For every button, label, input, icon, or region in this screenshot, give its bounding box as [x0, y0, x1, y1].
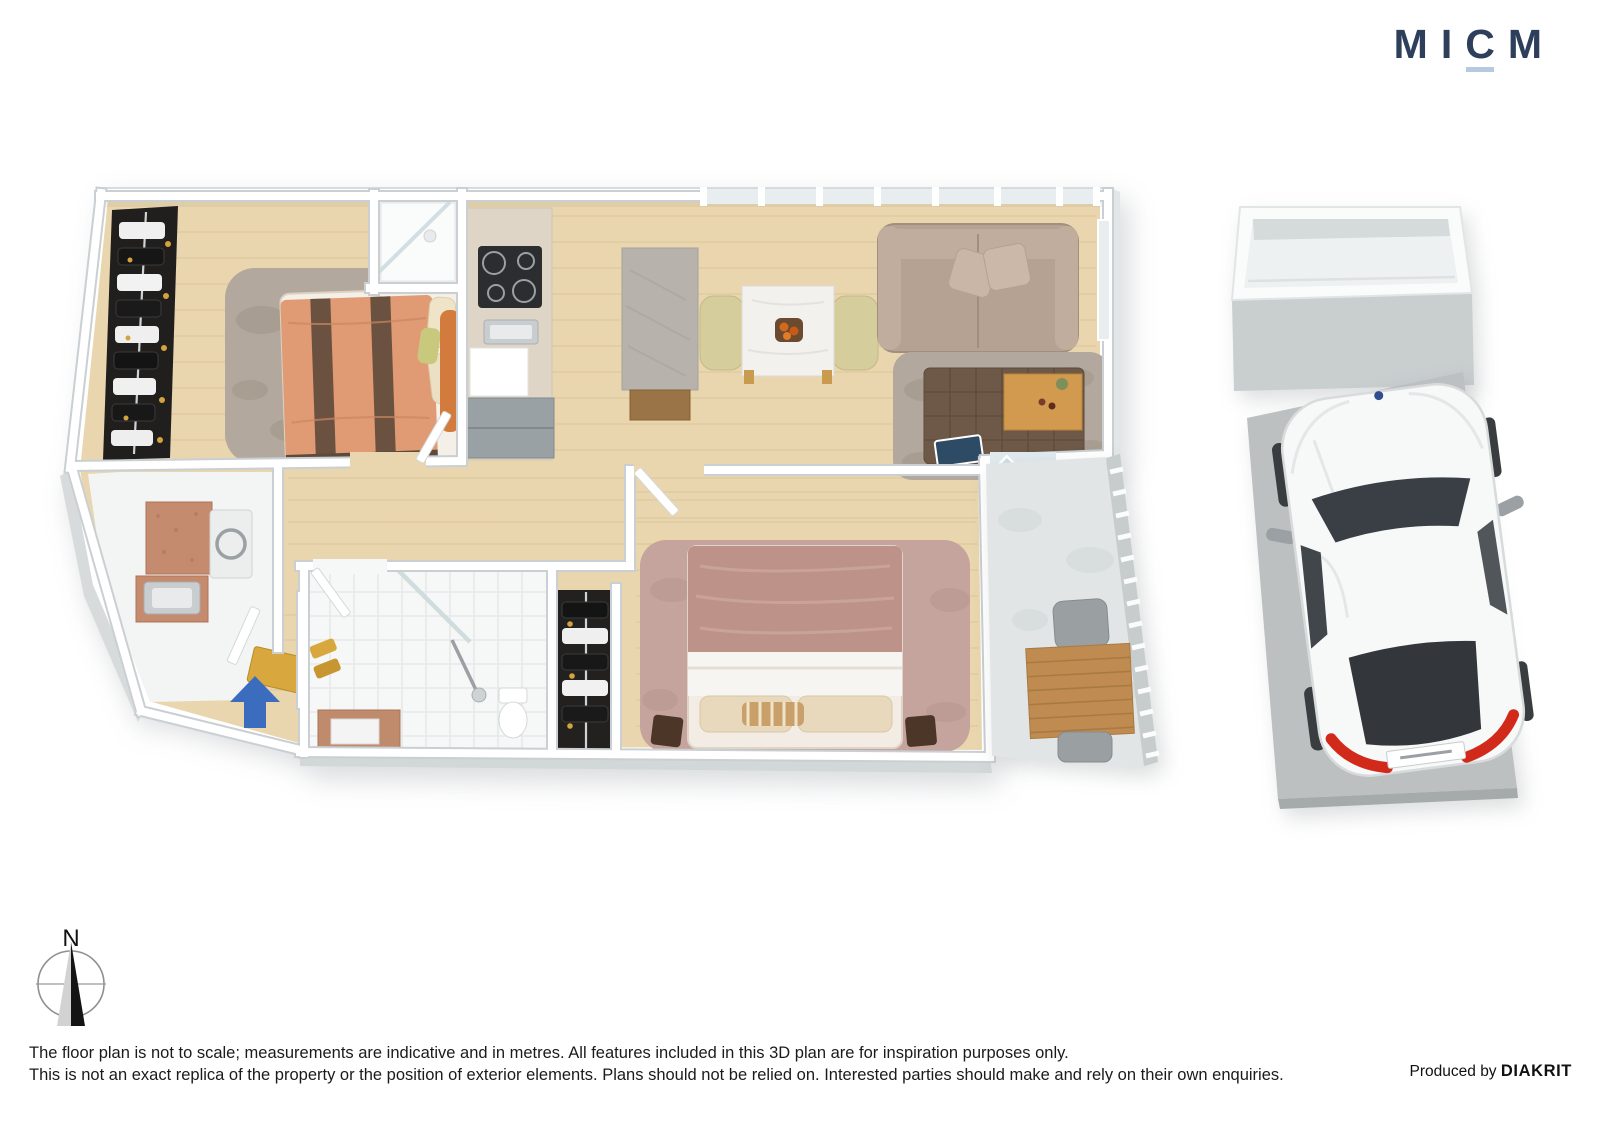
- cooktop: [478, 246, 542, 308]
- floor-plan-interior: [70, 187, 1112, 757]
- bathroom: [306, 568, 552, 753]
- splashback-tiles: [146, 502, 212, 574]
- ensuite-shower-room: [376, 198, 460, 288]
- disclaimer-line-1: The floor plan is not to scale; measurem…: [29, 1042, 1284, 1064]
- bathroom-door-gap: [313, 559, 387, 574]
- wardrobe-2: [556, 590, 616, 753]
- storage-front-face: [1232, 293, 1474, 391]
- magazine: [934, 435, 983, 467]
- dining-set: [700, 286, 878, 384]
- logo-letter: I: [1441, 24, 1452, 65]
- laundry-sink: [136, 576, 208, 622]
- basin: [331, 719, 379, 744]
- plant: [1056, 378, 1068, 390]
- pillow: [798, 696, 892, 732]
- island-base: [630, 390, 690, 420]
- side-window: [1098, 220, 1110, 340]
- balcony-chair-bottom: [1058, 732, 1112, 762]
- bedroom1-door-gap: [350, 452, 426, 469]
- disclaimer-line-2: This is not an exact replica of the prop…: [29, 1064, 1284, 1086]
- shower-drain: [424, 230, 436, 242]
- bed-2: [688, 546, 902, 748]
- sheet-fold: [688, 652, 902, 696]
- dining-chair-right: [832, 296, 878, 370]
- bedside-table-right: [905, 715, 938, 748]
- compass: N: [36, 925, 106, 1026]
- balcony-table: [1026, 643, 1135, 738]
- produced-by-credit: Produced by DIAKRIT: [1410, 1062, 1572, 1081]
- micm-logo: MICM: [1394, 24, 1542, 65]
- credit-brand: DIAKRIT: [1501, 1062, 1572, 1080]
- bedside-table-left: [650, 714, 683, 747]
- logo-letter: M: [1394, 24, 1428, 65]
- sofa-cushion: [982, 242, 1031, 291]
- floor-plan-page: N MICM The floor plan is not to scale; m…: [0, 0, 1600, 1131]
- credit-prefix: Produced by: [1410, 1063, 1501, 1080]
- dining-table: [742, 286, 834, 384]
- wardrobe-1: [103, 206, 178, 460]
- kitchen-sink: [484, 320, 538, 344]
- logo-letter: M: [1508, 24, 1542, 65]
- storage-cage: [1232, 207, 1474, 391]
- island-bench: [622, 248, 698, 420]
- balcony: [986, 454, 1159, 768]
- washing-machine: [210, 510, 252, 578]
- fridge: [466, 398, 554, 458]
- shower-tray: [381, 203, 455, 281]
- toilet: [499, 688, 527, 738]
- floor-plan-scene: N: [0, 0, 1600, 1131]
- sofa: [878, 224, 1078, 352]
- dining-chair-left: [700, 296, 744, 370]
- logo-letter-underlined: C: [1465, 24, 1495, 65]
- balcony-chair-top: [1052, 598, 1109, 650]
- disclaimer: The floor plan is not to scale; measurem…: [29, 1042, 1284, 1086]
- shower-head: [472, 688, 486, 702]
- kitchen-cabinet: [470, 348, 528, 396]
